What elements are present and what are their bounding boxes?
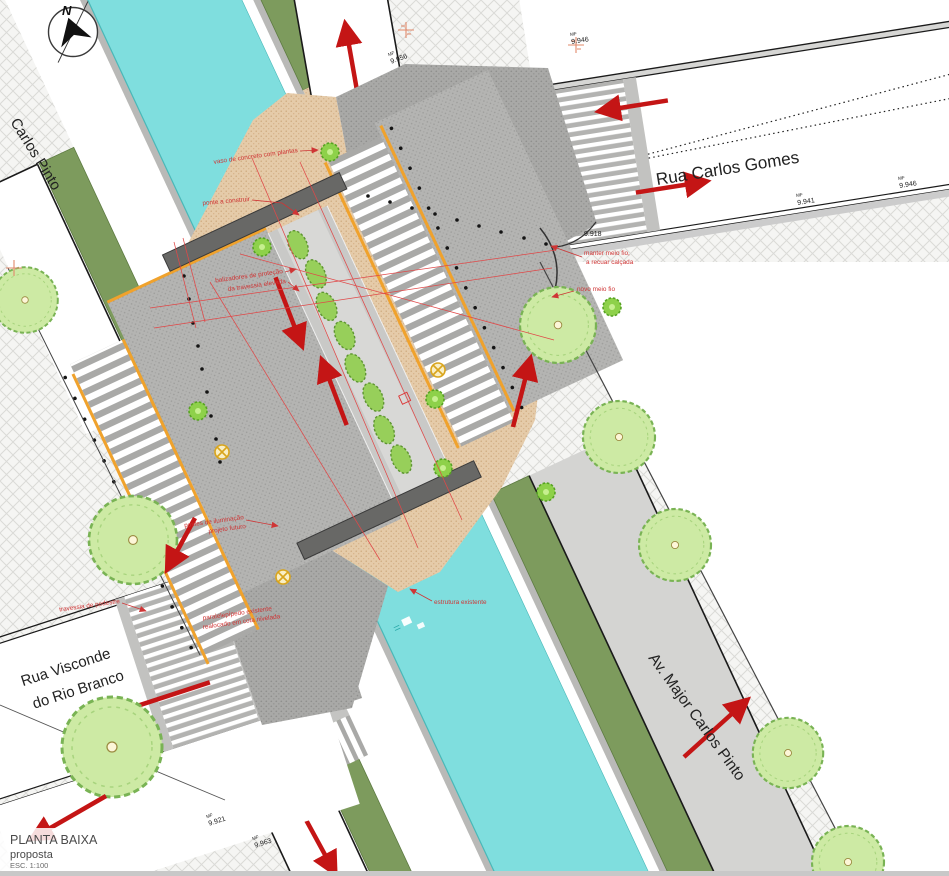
annotation-estrutura: estrutura existente [434, 599, 487, 606]
drawing-scale: ESC. 1:100 [10, 861, 48, 870]
elevation-value: 9.918 [584, 231, 602, 238]
tree-icon [639, 509, 711, 581]
elevation-mf: MF [570, 31, 578, 37]
site-plan-drawing: Rua Carlos Gomes Rua Visconde do Rio Bra… [0, 0, 949, 876]
elevation-mf: MF [796, 192, 804, 198]
planter-bush-icon [321, 143, 339, 161]
tree-icon [583, 401, 655, 473]
tree-icon [62, 697, 162, 797]
planter-bush-icon [537, 483, 555, 501]
compass-north-label: N [62, 3, 72, 18]
planter-bush-icon [253, 238, 271, 256]
tree-icon [753, 718, 823, 788]
planter-bush-icon [603, 298, 621, 316]
annotation-manter-2: a recuar calçada [586, 259, 634, 266]
elevation-mf: MF [898, 175, 906, 181]
tree-icon [520, 287, 596, 363]
annotation-manter-1: manter meio fio, [584, 250, 630, 257]
light-pole-icon [431, 363, 445, 377]
sheet-border-bottom [0, 871, 949, 876]
light-pole-icon [215, 445, 229, 459]
drawing-title: PLANTA BAIXA [10, 833, 98, 847]
planter-bush-icon [426, 390, 444, 408]
planter-bush-icon [189, 402, 207, 420]
planter-bush-icon [434, 459, 452, 477]
tree-icon [89, 496, 177, 584]
title-block: PLANTA BAIXA proposta ESC. 1:100 [0, 828, 150, 872]
annotation-novo-meio-fio: novo meio fio [577, 286, 615, 293]
drawing-subtitle: proposta [10, 849, 54, 861]
light-pole-icon [276, 570, 290, 584]
